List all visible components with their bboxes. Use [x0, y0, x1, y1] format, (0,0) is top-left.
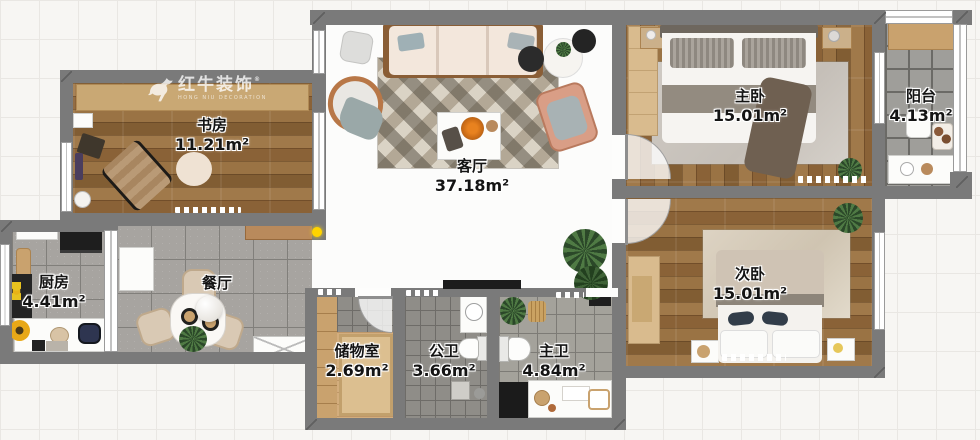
- room-area: 11.21m²: [175, 134, 249, 156]
- room-label-storage: 储物室 2.69m²: [325, 343, 388, 382]
- balcony-sink: [900, 162, 914, 176]
- wall-top-main: [310, 10, 885, 25]
- room-label-master-bath: 主卫 4.84m²: [522, 343, 585, 382]
- window-kitchen-left: [0, 244, 10, 326]
- vanity-stool: [534, 390, 550, 406]
- wall-second-bottom: [626, 366, 885, 378]
- pendant-lamp: [196, 296, 222, 322]
- window-study-living: [313, 112, 325, 210]
- wall-hall-upper: [612, 25, 626, 135]
- room-name: 储物室: [325, 343, 388, 360]
- room-area: 3.66m²: [412, 360, 475, 382]
- window-living-left-upper: [313, 30, 325, 74]
- nightstand-master-left-decor: [646, 30, 656, 40]
- room-label-master-bedroom: 主卧 15.01m²: [713, 88, 787, 127]
- wall-kitchen-dining-bottom: [0, 352, 315, 364]
- room-name: 主卧: [713, 88, 787, 105]
- window-second-right: [874, 232, 885, 330]
- room-area: 4.84m²: [522, 360, 585, 382]
- master-bath-plant: [500, 297, 526, 325]
- window-master-balcony: [874, 52, 885, 124]
- tv-panel: [443, 280, 521, 289]
- room-label-kitchen: 厨房 4.41m²: [22, 274, 85, 313]
- balcony-cabinet: [888, 22, 954, 50]
- room-area: 2.69m²: [325, 360, 388, 382]
- room-name: 公卫: [412, 343, 475, 360]
- corner-hatch: [956, 176, 968, 188]
- vanity-towel: [562, 386, 590, 401]
- room-name: 餐厅: [202, 275, 232, 292]
- corner-hatch: [1, 221, 12, 232]
- room-name: 次卧: [713, 266, 787, 283]
- corner-hatch: [874, 12, 886, 24]
- dining-table-plant: [179, 326, 207, 352]
- second-plant: [833, 203, 863, 233]
- registered-mark: ®: [254, 76, 262, 83]
- entry-threshold: [318, 289, 342, 295]
- room-label-living: 客厅 37.18m²: [435, 158, 509, 197]
- entry-passage-floor: [312, 240, 328, 290]
- room-area: 37.18m²: [435, 175, 509, 197]
- second-radiator: [722, 354, 786, 361]
- second-door-opening[interactable]: [612, 199, 626, 243]
- wall-bedrooms-divider: [626, 186, 872, 198]
- storage-door-leaf: [358, 296, 393, 299]
- second-desk-top: [632, 276, 652, 322]
- side-table-plant: [556, 42, 571, 57]
- balcony-bowl: [921, 163, 933, 175]
- wall-storage-bath-divider: [393, 288, 405, 430]
- wall-bath-divider: [487, 288, 499, 430]
- room-name: 书房: [175, 117, 249, 134]
- ottoman: [339, 30, 375, 66]
- room-area: 4.13m²: [889, 105, 952, 127]
- wall-hall-lower: [612, 243, 626, 430]
- brand-name: 红牛装饰: [178, 75, 254, 95]
- kitchen-cabinet-flowers: [12, 282, 21, 300]
- wall-kitchen-top: [0, 220, 118, 232]
- room-area: 15.01m²: [713, 105, 787, 127]
- bed-master-pillow-right: [742, 38, 806, 68]
- dining-cabinet: [119, 247, 154, 291]
- corner-hatch: [306, 419, 317, 430]
- room-name: 客厅: [435, 158, 509, 175]
- study-shelf: [73, 113, 93, 128]
- room-name: 阳台: [889, 88, 952, 105]
- study-radiator: [175, 207, 241, 213]
- nightstand-second-right-decor: [833, 343, 843, 353]
- coffee-table-flowers: [461, 117, 484, 140]
- room-label-dining: 餐厅: [202, 275, 232, 292]
- kitchen-tray: [46, 341, 68, 351]
- shower-drain: [451, 381, 470, 400]
- study-round-rug: [176, 152, 212, 186]
- window-study-left: [61, 142, 72, 212]
- room-area: 15.01m²: [713, 283, 787, 305]
- window-balcony-right: [953, 24, 967, 172]
- corner-hatch: [614, 419, 625, 430]
- room-label-public-bath: 公卫 3.66m²: [412, 343, 475, 382]
- study-floor-lamp: [74, 191, 91, 208]
- floor-plan: 红牛装饰® HONG NIU DECORATION 书房 11.21m² 客厅 …: [0, 0, 980, 440]
- wall-hall-stub: [612, 179, 626, 199]
- master-bath-door-opening[interactable]: [586, 288, 618, 297]
- room-name: 厨房: [22, 274, 85, 291]
- study-cabinet-dark: [75, 153, 83, 180]
- wall-storage-left: [305, 288, 317, 430]
- corner-hatch: [874, 367, 885, 378]
- bed-master-pillow-left: [670, 38, 734, 68]
- round-table-black: [518, 46, 544, 72]
- floor-lamp-black: [572, 29, 596, 53]
- vanity-soap: [548, 404, 556, 412]
- vanity-sink: [588, 389, 610, 410]
- public-bath-sink-basin: [465, 303, 483, 321]
- master-bath-basket: [528, 301, 546, 322]
- master-door-leaf: [625, 134, 628, 180]
- kitchen-sliding-door[interactable]: [104, 230, 118, 352]
- room-label-second-bedroom: 次卧 15.01m²: [713, 266, 787, 305]
- coffee-table-bowl: [486, 120, 498, 132]
- public-bath-towel-rack: [406, 290, 440, 296]
- kitchen-wok: [9, 320, 30, 341]
- slipper-right: [761, 311, 788, 327]
- room-label-study: 书房 11.21m²: [175, 117, 249, 156]
- room-area: 4.41m²: [22, 291, 85, 313]
- corner-hatch: [313, 12, 325, 24]
- second-door-leaf: [625, 199, 628, 245]
- brand-subtitle: HONG NIU DECORATION: [178, 96, 267, 101]
- nightstand-master-right-decor: [828, 30, 840, 42]
- master-door-opening[interactable]: [612, 135, 626, 179]
- shower-head: [474, 388, 485, 399]
- brand-watermark: 红牛装饰® HONG NIU DECORATION: [148, 76, 267, 102]
- kitchen-black-box: [32, 340, 45, 351]
- bull-logo-icon: [148, 76, 174, 102]
- kitchen-blue-pot: [78, 323, 101, 344]
- wall-bath-block-bottom: [305, 418, 626, 430]
- laundry-basket: [932, 123, 953, 150]
- master-radiator: [798, 176, 870, 183]
- window-balcony-top: [885, 10, 953, 24]
- entry-door-dot: [312, 227, 322, 237]
- corner-hatch: [956, 11, 968, 23]
- room-name: 主卫: [522, 343, 585, 360]
- master-bath-towel-rack: [556, 292, 584, 298]
- room-label-balcony: 阳台 4.13m²: [889, 88, 952, 127]
- corner-hatch: [61, 71, 72, 82]
- nightstand-second-left-decor: [697, 345, 710, 358]
